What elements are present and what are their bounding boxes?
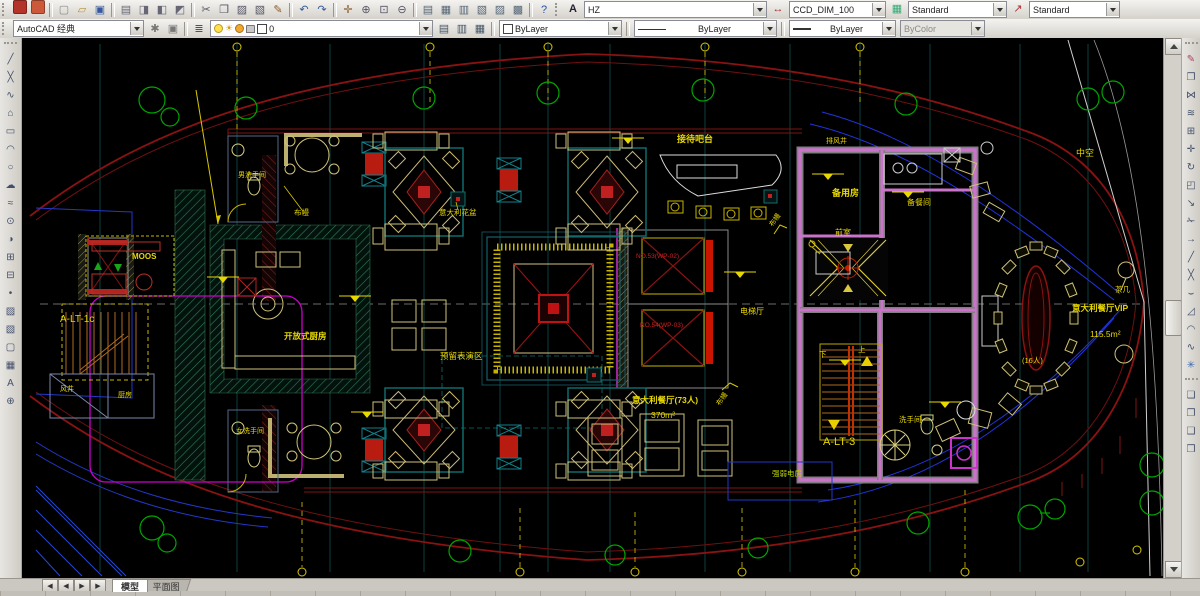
circle-icon[interactable]: ○ (1, 158, 20, 176)
toolbar-grip[interactable] (1185, 378, 1198, 384)
line-icon[interactable]: ╱ (1, 50, 20, 68)
label-exhaust-shaft: 排风井 (826, 136, 847, 146)
color-value: ByLayer (515, 24, 606, 34)
match-properties-icon[interactable]: ✎ (269, 2, 287, 19)
workspace-settings-icon[interactable]: ✱ (146, 21, 164, 38)
workspace-combo[interactable]: AutoCAD 经典 (13, 20, 144, 37)
label-hollow: 中空 (1076, 146, 1094, 159)
linetype-sample (638, 29, 666, 30)
separator (529, 3, 533, 17)
label-stair-3: A-LT-3 (823, 436, 855, 448)
scroll-down-button[interactable] (1165, 561, 1182, 578)
cut-icon[interactable]: ✂ (197, 2, 215, 19)
label-elevator-2: NO.54(WP-03) (640, 322, 683, 329)
toolbar-grip[interactable] (2, 22, 9, 35)
separator (781, 22, 785, 36)
dim-style-dropdown-button[interactable] (872, 3, 885, 16)
toolbar-grip[interactable] (4, 42, 17, 48)
polygon-icon[interactable]: ⌂ (1, 104, 20, 122)
current-layer-name: 0 (269, 24, 417, 34)
lineweight-value: ByLayer (813, 24, 880, 34)
region-icon[interactable]: ▢ (1, 338, 20, 356)
label-area-370: 370m² (651, 410, 675, 420)
label-pantry: 备餐间 (907, 197, 931, 208)
layer-dropdown-button[interactable] (419, 22, 432, 35)
color-combo[interactable]: ByLayer (499, 20, 622, 37)
chamfer-icon[interactable]: ◿ (1182, 302, 1200, 320)
label-kitchen-small: 厨房 (118, 390, 132, 400)
ellipse-arc-icon[interactable]: ◑ (1, 230, 20, 248)
table-icon[interactable]: ▦ (1, 356, 20, 374)
plot-style-dropdown-button[interactable] (971, 22, 984, 35)
toolbar-grip[interactable] (2, 3, 9, 16)
redo-icon[interactable]: ↷ (313, 2, 331, 19)
layer-freeze-icon[interactable]: ☀ (225, 24, 233, 33)
label-anteroom: 前室 (835, 227, 851, 238)
separator (49, 3, 53, 17)
label-performance-area: 预留表演区 (440, 350, 483, 362)
separator (413, 3, 417, 17)
linetype-dropdown-button[interactable] (763, 22, 776, 35)
toolbar-grip[interactable] (555, 3, 562, 16)
layer-color-swatch (257, 24, 267, 34)
label-curtain-left: 布幔 (294, 207, 309, 218)
label-moos: MOOS (132, 252, 156, 261)
construction-line-icon[interactable]: ╳ (1, 68, 20, 86)
layer-properties-manager-icon[interactable]: ≣ (190, 21, 208, 38)
arc-icon[interactable]: ◠ (1, 140, 20, 158)
label-stair-up: 上 (858, 344, 866, 355)
separator (191, 3, 195, 17)
separator (626, 22, 630, 36)
label-mens-restroom: 男洗手间 (238, 170, 266, 180)
copy-icon[interactable]: ❐ (1182, 68, 1200, 86)
layers-properties-toolbar: AutoCAD 经典 ✱▣ ≣ ☀ 0 ▤▥▦ ByLayer ByLayer (0, 19, 1200, 39)
linetype-value: ByLayer (668, 24, 761, 34)
multiline-text-icon[interactable]: A (1, 374, 20, 392)
pan-icon[interactable]: ✛ (339, 2, 357, 19)
color-dropdown-button[interactable] (608, 22, 621, 35)
extend-icon[interactable]: → (1182, 230, 1200, 248)
markup-set-manager-icon[interactable]: ▨ (491, 2, 509, 19)
paste-icon[interactable]: ▨ (233, 2, 251, 19)
blend-curves-icon[interactable]: ∿ (1182, 338, 1200, 356)
layer-combo[interactable]: ☀ 0 (210, 20, 433, 37)
floor-plan-drawing (22, 38, 1163, 578)
polyline-icon[interactable]: ∿ (1, 86, 20, 104)
label-reception-bar: 接待吧台 (677, 132, 713, 145)
layer-on-icon[interactable] (214, 24, 223, 33)
quick-calc-icon[interactable]: ▩ (509, 2, 527, 19)
text-style-combo[interactable]: HZ (584, 1, 767, 18)
plot-style-combo[interactable]: ByColor (900, 20, 985, 37)
vertical-scrollbar[interactable] (1163, 38, 1181, 578)
layer-lock-icon[interactable] (246, 25, 255, 33)
save-file-icon[interactable]: ▣ (91, 2, 109, 19)
hatch-icon[interactable]: ▨ (1, 302, 20, 320)
stretch-icon[interactable]: ↘ (1182, 194, 1200, 212)
properties-palette-icon[interactable]: ▤ (419, 2, 437, 19)
scroll-up-button[interactable] (1165, 38, 1182, 55)
separator (289, 3, 293, 17)
sheet-set-manager-icon[interactable]: ▧ (473, 2, 491, 19)
rotate-icon[interactable]: ↻ (1182, 158, 1200, 176)
table-style-value: Standard (912, 5, 991, 15)
scale-icon[interactable]: ◰ (1182, 176, 1200, 194)
bring-above-icon[interactable]: ❑ (1182, 422, 1200, 440)
scrollbar-thumb[interactable] (1165, 300, 1182, 336)
tool-palettes-icon[interactable]: ▥ (455, 2, 473, 19)
zoom-previous-icon[interactable]: ⊖ (393, 2, 411, 19)
add-selected-icon[interactable]: ⊕ (1, 392, 20, 410)
linetype-combo[interactable]: ByLayer (634, 20, 777, 37)
join-icon[interactable]: ⌣ (1182, 284, 1200, 302)
zoom-window-icon[interactable]: ⊡ (375, 2, 393, 19)
dim-style-icon[interactable]: ↔ (769, 1, 787, 18)
label-wind-shaft: 风井 (60, 384, 74, 394)
undo-icon[interactable]: ↶ (295, 2, 313, 19)
modify-toolbar: ✎❐⋈≋⊞✛↻◰↘✁→╱╳⌣◿◠∿✳ ❏❐❑❒ (1181, 38, 1200, 596)
plot-icon[interactable]: ▤ (117, 2, 135, 19)
move-icon[interactable]: ✛ (1182, 140, 1200, 158)
draw-toolbar: ╱╳∿⌂▭◠○☁≈⊙◑⊞⊟•▨▧▢▦A⊕ (0, 38, 22, 596)
publish-icon[interactable]: ◧ (153, 2, 171, 19)
toolbar-grip[interactable] (1185, 42, 1198, 48)
lineweight-dropdown-button[interactable] (882, 22, 895, 35)
dim-style-value: CCD_DIM_100 (793, 5, 870, 15)
rectangle-icon[interactable]: ▭ (1, 122, 20, 140)
tab-model[interactable]: 模型 (112, 579, 148, 592)
export-dwf-icon[interactable]: ◩ (171, 2, 189, 19)
command-line-edge (0, 591, 1200, 596)
insert-block-icon[interactable]: ⊞ (1, 248, 20, 266)
model-space-canvas[interactable]: 接待吧台 排风井 备用房 备餐间 前室 布幔 布幔 布幔 男洗手间 意大利花盆 … (22, 38, 1163, 578)
autocad-window: ▢▱▣ ▤◨◧◩ ✂❐▨▧✎ ↶↷ ✛⊕⊡⊖ ▤▦▥▧▨▩ ? A HZ ↔ C… (0, 0, 1200, 596)
trim-icon[interactable]: ✁ (1182, 212, 1200, 230)
multileader-style-combo[interactable]: Standard (1029, 1, 1120, 18)
offset-icon[interactable]: ≋ (1182, 104, 1200, 122)
label-stair-down: 下 (819, 349, 827, 360)
lineweight-sample (793, 28, 811, 30)
explode-icon[interactable]: ✳ (1182, 356, 1200, 374)
layout-tab-bar: ◀ ◀ ▶ ▶ 模型 平面图 (0, 578, 1200, 592)
fillet-icon[interactable]: ◠ (1182, 320, 1200, 338)
send-to-back-icon[interactable]: ❐ (1182, 404, 1200, 422)
break-icon[interactable]: ╳ (1182, 266, 1200, 284)
separator (491, 22, 495, 36)
label-open-kitchen: 开放式厨房 (284, 330, 327, 342)
copy-clip-icon[interactable]: ❐ (215, 2, 233, 19)
label-spare-room: 备用房 (832, 186, 859, 199)
spline-icon[interactable]: ≈ (1, 194, 20, 212)
break-at-point-icon[interactable]: ╱ (1182, 248, 1200, 266)
multileader-style-dropdown-button[interactable] (1106, 3, 1119, 16)
send-under-icon[interactable]: ❒ (1182, 440, 1200, 458)
label-stair-1c: A-LT-1c (60, 314, 94, 325)
plot-preview-icon[interactable]: ◨ (135, 2, 153, 19)
ellipse-icon[interactable]: ⊙ (1, 212, 20, 230)
label-seats-16: (16人) (1022, 355, 1043, 366)
new-file-icon[interactable]: ▢ (55, 2, 73, 19)
point-icon[interactable]: • (1, 284, 20, 302)
table-style-dropdown-button[interactable] (993, 3, 1006, 16)
mirror-icon[interactable]: ⋈ (1182, 86, 1200, 104)
label-restaurant-seats: 意大利餐厅(73人) (632, 394, 698, 406)
make-block-icon[interactable]: ⊟ (1, 266, 20, 284)
pdf-export-icon[interactable] (13, 0, 27, 14)
label-womens-restroom: 女洗手间 (236, 426, 264, 436)
label-tea-table: 茶几 (1115, 284, 1130, 295)
array-icon[interactable]: ⊞ (1182, 122, 1200, 140)
lineweight-combo[interactable]: ByLayer (789, 20, 896, 37)
label-elevator-hall: 电梯厅 (740, 306, 764, 317)
separator (333, 3, 337, 17)
zoom-realtime-icon[interactable]: ⊕ (357, 2, 375, 19)
label-area-115: 115.5m² (1090, 329, 1121, 339)
table-style-combo[interactable]: Standard (908, 1, 1007, 18)
text-style-icon[interactable]: A (564, 1, 582, 18)
bring-to-front-icon[interactable]: ❏ (1182, 386, 1200, 404)
standard-toolbar: ▢▱▣ ▤◨◧◩ ✂❐▨▧✎ ↶↷ ✛⊕⊡⊖ ▤▦▥▧▨▩ ? A HZ ↔ C… (0, 0, 1200, 20)
separator (111, 3, 115, 17)
erase-icon[interactable]: ✎ (1182, 50, 1200, 68)
make-object-layer-current-icon[interactable]: ▥ (453, 21, 471, 38)
multileader-style-icon[interactable]: ↗ (1009, 1, 1027, 18)
help-icon[interactable]: ? (535, 2, 553, 19)
text-style-value: HZ (588, 5, 751, 15)
layer-previous-icon[interactable]: ▦ (471, 21, 489, 38)
label-electrical-room: 强弱电房 (772, 468, 802, 479)
label-italian-flowerpot: 意大利花盆 (439, 207, 477, 218)
gradient-icon[interactable]: ▧ (1, 320, 20, 338)
color-swatch (503, 24, 513, 34)
plot-style-value: ByColor (904, 24, 969, 34)
layer-states-icon[interactable]: ▤ (435, 21, 453, 38)
multileader-style-value: Standard (1033, 5, 1104, 15)
workspace-save-icon[interactable]: ▣ (164, 21, 182, 38)
pdf-review-icon[interactable] (31, 0, 45, 14)
paste-special-icon[interactable]: ▧ (251, 2, 269, 19)
dim-style-combo[interactable]: CCD_DIM_100 (789, 1, 886, 18)
workspace-value: AutoCAD 经典 (17, 22, 128, 35)
label-restroom: 洗手间 (899, 414, 922, 425)
revision-cloud-icon[interactable]: ☁ (1, 176, 20, 194)
table-style-icon[interactable]: ▦ (888, 1, 906, 18)
layer-viewport-icon[interactable] (235, 24, 244, 33)
label-elevator-1: NO.53(WP-02) (636, 253, 679, 260)
label-vip-room: 意大利餐厅VIP (1072, 302, 1128, 314)
design-center-icon[interactable]: ▦ (437, 2, 455, 19)
workspace-dropdown-button[interactable] (130, 22, 143, 35)
open-file-icon[interactable]: ▱ (73, 2, 91, 19)
text-style-dropdown-button[interactable] (753, 3, 766, 16)
separator (184, 22, 188, 36)
